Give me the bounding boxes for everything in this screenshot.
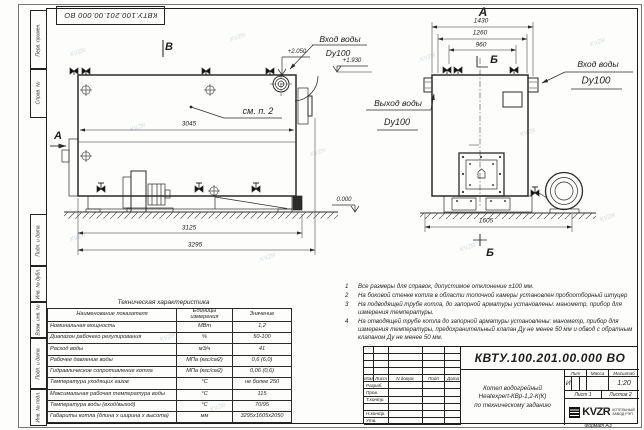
- spec-row: Номинальная мощностьМВт1,2: [48, 321, 292, 332]
- lit-value: И: [565, 377, 572, 391]
- dim-3295: 3295: [188, 242, 202, 249]
- note-item: 1Все размеры для справок, допустимое отк…: [345, 283, 638, 291]
- spec-row: Расход водым3/ч41: [48, 344, 292, 355]
- massa-value: [587, 377, 609, 391]
- note-item: 4На отводящей трубе котла до запорной ар…: [345, 318, 638, 342]
- section-mark-b-top: Б: [490, 54, 498, 66]
- spec-row: Диапазон рабочего регулирования%50-100: [48, 333, 292, 344]
- product-name-line: по техническому заданию: [474, 402, 550, 410]
- view-mark-b: В: [165, 41, 173, 53]
- doc-number: КВТУ.100.201.00.000 ВО: [461, 347, 639, 370]
- kvzr-logo-text: KVZR: [582, 406, 610, 418]
- inlet-dn-right: Dy100: [582, 76, 611, 87]
- tb-header-ndocum: N докум.: [389, 375, 423, 382]
- dim-1605: 1605: [479, 218, 493, 225]
- section-mark-b-bottom: Б: [486, 247, 494, 259]
- title-block-signature-grid: Изм Лист N докум. Подп Дата Разраб. Пров…: [364, 347, 461, 425]
- note-item: 3На подводящей трубе котла, до запорной …: [345, 301, 638, 317]
- tb-header-podp: Подп: [423, 375, 445, 382]
- elev-1930: +1.930: [343, 58, 362, 64]
- dim-3045: 3045: [182, 121, 196, 128]
- spec-row: Температура уходящих газов°Сне более 250: [48, 378, 292, 389]
- spec-row: Габариты котла (длина х ширина х высота)…: [48, 412, 292, 423]
- spec-row: Максимальная рабочая температура воды°С1…: [48, 389, 292, 400]
- tb-header-list: Лист: [374, 375, 389, 382]
- tb-row-blank: [364, 404, 389, 411]
- inlet-label-top: Вход воды: [319, 34, 360, 44]
- sheet-cell: Лист 1: [565, 391, 602, 399]
- elev-2050: +2.050: [288, 49, 307, 55]
- drawing-sheet: KVZR KVZR KVZR KVZR KVZR KVZR KVZR KVZR …: [0, 0, 644, 430]
- dim-1260: 1260: [473, 30, 487, 37]
- dim-960: 960: [476, 42, 487, 49]
- outlet-label: Выход воды: [374, 98, 422, 108]
- lit-cell: [572, 377, 579, 391]
- spec-row: Температура воды (вход/выход)°С70/95: [48, 400, 292, 411]
- spec-table-title: Техническая характеристика: [47, 299, 280, 306]
- tb-row-tkontr: Т.контр.: [364, 397, 389, 404]
- scale-value: 1:20: [609, 377, 639, 391]
- note-item: 2На боковой стенке котла в области топоч…: [345, 292, 638, 300]
- inlet-dn-top: Dy100: [326, 48, 351, 58]
- front-view-geometry: [420, 22, 633, 246]
- spec-header-units: Единицы измерения: [177, 309, 233, 322]
- tb-row-prov: Пров.: [364, 389, 389, 396]
- product-name-line: Heatexpert-КВр-1,2-К(К): [479, 393, 547, 401]
- company-logo: KVZR КОТЕЛЬНЫЙ ЗАВОД РЭП: [565, 399, 639, 425]
- side-view-geometry: [50, 40, 434, 255]
- format-label: Формат А3: [556, 423, 640, 429]
- dim-3125: 3125: [182, 225, 196, 232]
- dim-1430: 1430: [474, 18, 488, 25]
- spec-header-row: Наименование показателя Единицы измерени…: [48, 309, 292, 322]
- tb-header-izm: Изм: [364, 375, 374, 382]
- section-mark-a: А: [54, 130, 62, 142]
- callout-see-note: см. п. 2: [243, 106, 274, 116]
- sheets-cell: Листов 2: [602, 391, 639, 399]
- product-name-line: Котел водогрейный: [483, 385, 542, 393]
- tb-row-utv: Утв.: [364, 418, 389, 425]
- spec-row: Рабочее давление водыМПа (кгс/см2)0,6 (6…: [48, 355, 292, 366]
- spec-row: Гидравлическое сопротивление котлаМПа (к…: [48, 366, 292, 377]
- kvzr-logo-subtext: КОТЕЛЬНЫЙ ЗАВОД РЭП: [612, 408, 635, 416]
- kvzr-logo-icon: [569, 407, 580, 418]
- massa-header: Масса: [587, 370, 609, 377]
- product-name: Котел водогрейный Heatexpert-КВр-1,2-К(К…: [461, 370, 565, 425]
- notes-list: 1Все размеры для справок, допустимое отк…: [345, 283, 638, 343]
- title-block: Изм Лист N докум. Подп Дата Разраб. Пров…: [363, 346, 638, 424]
- spec-header-value: Значение: [233, 309, 292, 322]
- spec-table: Наименование показателя Единицы измерени…: [47, 308, 292, 423]
- lit-header: Лит: [565, 370, 587, 377]
- elev-0000: 0.000: [336, 197, 351, 203]
- inlet-label-right: Вход воды: [577, 59, 618, 69]
- spec-header-name: Наименование показателя: [48, 309, 177, 322]
- masshtab-header: Масштаб: [609, 370, 639, 377]
- outlet-dn: Dy100: [384, 117, 410, 127]
- lit-cell: [580, 377, 587, 391]
- tb-row-razrab: Разраб.: [364, 382, 389, 389]
- tb-row-nkontr: Н.контр.: [364, 411, 389, 418]
- tb-header-data: Дата: [445, 375, 461, 382]
